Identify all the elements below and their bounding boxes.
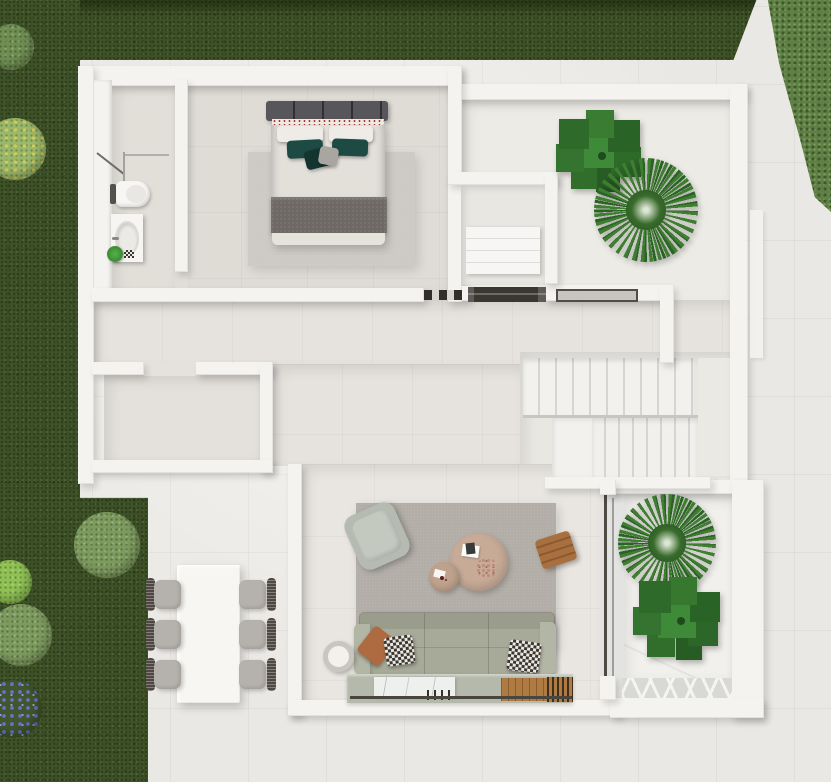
bed-trim-patterned bbox=[272, 119, 384, 125]
wall-corner-stub bbox=[660, 285, 674, 363]
window-track-bottom bbox=[350, 696, 572, 699]
bush-mid-left bbox=[74, 512, 140, 578]
storage-door-opening bbox=[144, 362, 196, 376]
vanity-faucet bbox=[112, 237, 119, 240]
entrance-mat bbox=[556, 289, 638, 302]
bed-foot-sheet bbox=[272, 233, 385, 245]
chair-back-right-3 bbox=[267, 658, 276, 691]
stairs-upper-flight bbox=[523, 358, 695, 415]
wall-bathroom-bedroom-divider bbox=[175, 80, 188, 272]
shower-glass-panel bbox=[123, 152, 125, 182]
dried-flowers bbox=[476, 558, 498, 578]
glass-door-frame-line bbox=[604, 494, 607, 680]
fiddle-leaf-courtyard-core bbox=[677, 617, 685, 625]
cushion-gray-small bbox=[318, 145, 340, 166]
small-table-berries bbox=[440, 576, 444, 580]
armchair-cushion bbox=[350, 508, 404, 564]
floor-hall-mid bbox=[272, 364, 522, 466]
wall-closet-right bbox=[545, 172, 558, 284]
wall-living-left bbox=[288, 464, 302, 716]
chair-back-right-1 bbox=[267, 578, 276, 611]
wall-closet-top bbox=[448, 172, 558, 185]
stairs-landing bbox=[552, 418, 592, 477]
glass-door-frame-line-2 bbox=[612, 498, 614, 678]
palm-plant-patio bbox=[594, 158, 698, 262]
stairs-lower-flight bbox=[592, 418, 698, 477]
wall-storage-top-left bbox=[92, 362, 144, 375]
wall-top-left-section bbox=[78, 66, 462, 86]
vanity-plant bbox=[107, 246, 123, 262]
wall-storage-right bbox=[260, 362, 273, 472]
wall-bedroom-bottom bbox=[92, 288, 424, 302]
chair-seat-left-3 bbox=[154, 660, 181, 689]
shower-partition-line bbox=[125, 154, 169, 156]
chair-seat-right-2 bbox=[239, 620, 266, 649]
wall-storage-bottom bbox=[92, 460, 273, 473]
bedroom-slider-track bbox=[424, 290, 462, 300]
floor-plan-scene bbox=[0, 0, 831, 782]
entrance-door-threshold bbox=[468, 287, 546, 302]
sofa-cushion-checker-left bbox=[383, 634, 416, 667]
round-side-table bbox=[323, 641, 354, 672]
sofa-cushion-checker-right bbox=[506, 639, 542, 674]
chair-seat-left-1 bbox=[154, 580, 181, 609]
wall-outer-left bbox=[78, 66, 94, 484]
vanity-accessories bbox=[124, 250, 134, 258]
hedge-top-right bbox=[750, 0, 831, 212]
dining-table bbox=[177, 565, 240, 703]
wall-stairs-bottom bbox=[545, 477, 711, 489]
garden-low-wall bbox=[750, 210, 763, 358]
coffee-table-book bbox=[465, 543, 475, 555]
chair-back-right-2 bbox=[267, 618, 276, 651]
wall-courtyard-right bbox=[732, 480, 764, 718]
courtyard-glazing bbox=[622, 678, 732, 698]
stairs-side-floor bbox=[698, 358, 730, 476]
chair-seat-left-2 bbox=[154, 620, 181, 649]
bed-headboard bbox=[266, 101, 388, 121]
wall-outer-right bbox=[730, 84, 748, 484]
sofa-arm-right bbox=[540, 622, 556, 674]
toilet-seat-inner bbox=[126, 185, 146, 203]
glass-door-post-top bbox=[600, 480, 616, 495]
lawn-top bbox=[0, 0, 764, 60]
palm-plant-courtyard bbox=[618, 494, 716, 592]
wall-top-right-section bbox=[448, 84, 746, 100]
glass-door-post-bottom bbox=[600, 676, 616, 700]
wall-courtyard-bottom bbox=[610, 698, 764, 718]
closet-linen-stack bbox=[466, 226, 540, 274]
floor-storage-room bbox=[104, 374, 260, 460]
chair-seat-right-3 bbox=[239, 660, 266, 689]
chair-seat-right-1 bbox=[239, 580, 266, 609]
bed-blanket bbox=[271, 197, 387, 233]
fiddle-leaf-patio-core bbox=[598, 152, 606, 160]
